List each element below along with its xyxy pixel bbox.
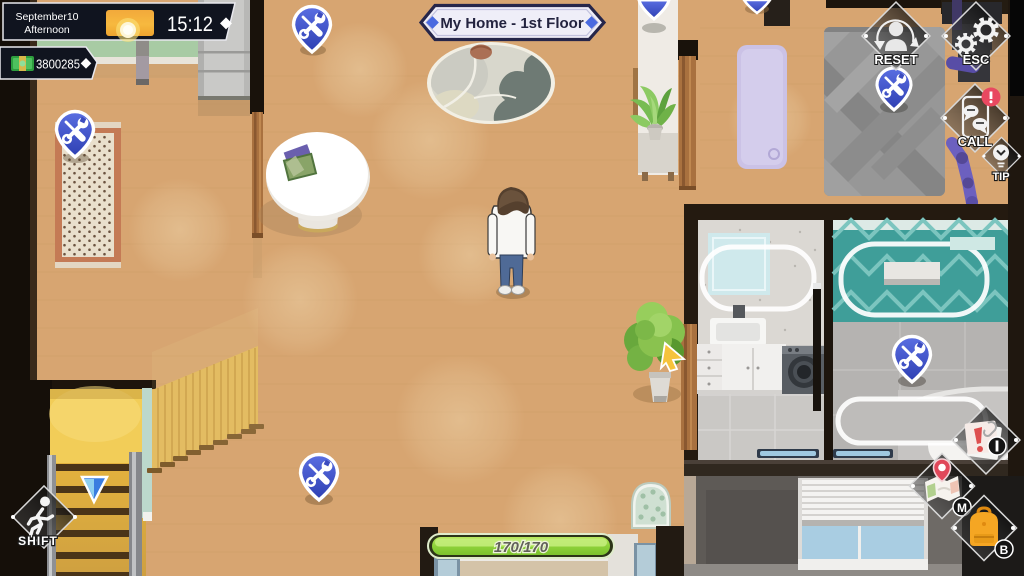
svg-text:Afternoon: Afternoon — [24, 24, 70, 36]
svg-text:TIP: TIP — [992, 171, 1009, 183]
svg-text:SHIFT: SHIFT — [18, 534, 58, 548]
svg-text:15:12: 15:12 — [167, 13, 213, 36]
svg-text:CALL: CALL — [958, 134, 993, 149]
svg-text:B: B — [1000, 543, 1009, 557]
svg-text:3800285: 3800285 — [36, 57, 80, 72]
svg-text:September10: September10 — [15, 11, 78, 23]
svg-text:RESET: RESET — [874, 52, 917, 67]
svg-text:170/170: 170/170 — [494, 539, 549, 556]
svg-text:M: M — [957, 501, 967, 515]
svg-text:ESC: ESC — [963, 52, 990, 67]
svg-text:My Home - 1st Floor: My Home - 1st Floor — [440, 15, 584, 32]
